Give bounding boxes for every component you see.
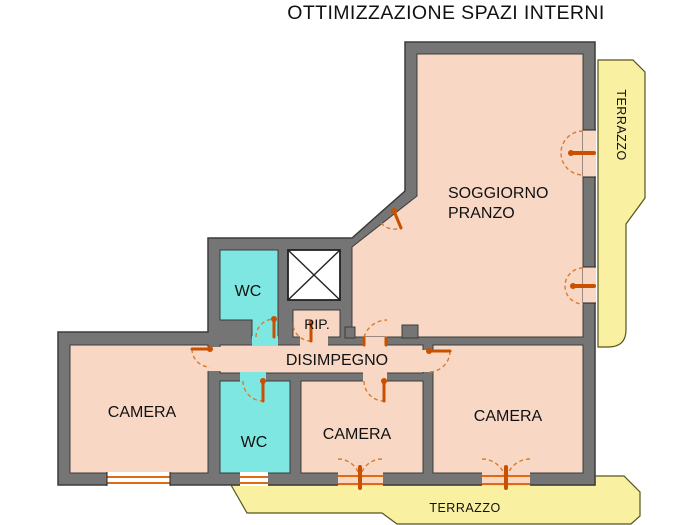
door-opening xyxy=(300,336,328,346)
label-camera-middle: CAMERA xyxy=(323,426,392,443)
wall-pillar xyxy=(345,327,355,338)
door-hinge xyxy=(391,208,397,214)
window-wc-bottom xyxy=(240,472,268,486)
label-rip: RIP. xyxy=(304,316,329,332)
door-hinge xyxy=(260,378,266,384)
label-soggiorno-line2: PRANZO xyxy=(448,205,515,222)
label-disimpegno: DISIMPEGNO xyxy=(286,352,388,369)
label-terrace-right: TERRAZZO xyxy=(614,89,628,160)
door-hinge xyxy=(381,378,387,384)
label-wc-top: WC xyxy=(235,283,262,300)
room-wc-bottom-floor xyxy=(220,381,290,473)
door-hinge xyxy=(426,348,432,354)
wall-pillar xyxy=(402,325,418,338)
floor-plan-page: OTTIMIZZAZIONE SPAZI INTERNI xyxy=(0,0,700,525)
passage-opening xyxy=(363,337,387,346)
page-title: OTTIMIZZAZIONE SPAZI INTERNI xyxy=(287,2,604,24)
door-hinge xyxy=(271,316,277,322)
window-camera-left xyxy=(107,472,170,486)
door-hinge xyxy=(207,346,213,352)
label-camera-left: CAMERA xyxy=(108,404,177,421)
floor-plan-canvas: OTTIMIZZAZIONE SPAZI INTERNI xyxy=(0,0,700,525)
label-camera-right: CAMERA xyxy=(474,408,543,425)
label-terrace-bottom: TERRAZZO xyxy=(429,501,500,515)
door-hinge xyxy=(568,150,574,156)
door-hinge xyxy=(570,283,576,289)
label-soggiorno-line1: SOGGIORNO xyxy=(448,185,548,202)
label-wc-bottom: WC xyxy=(241,434,268,451)
